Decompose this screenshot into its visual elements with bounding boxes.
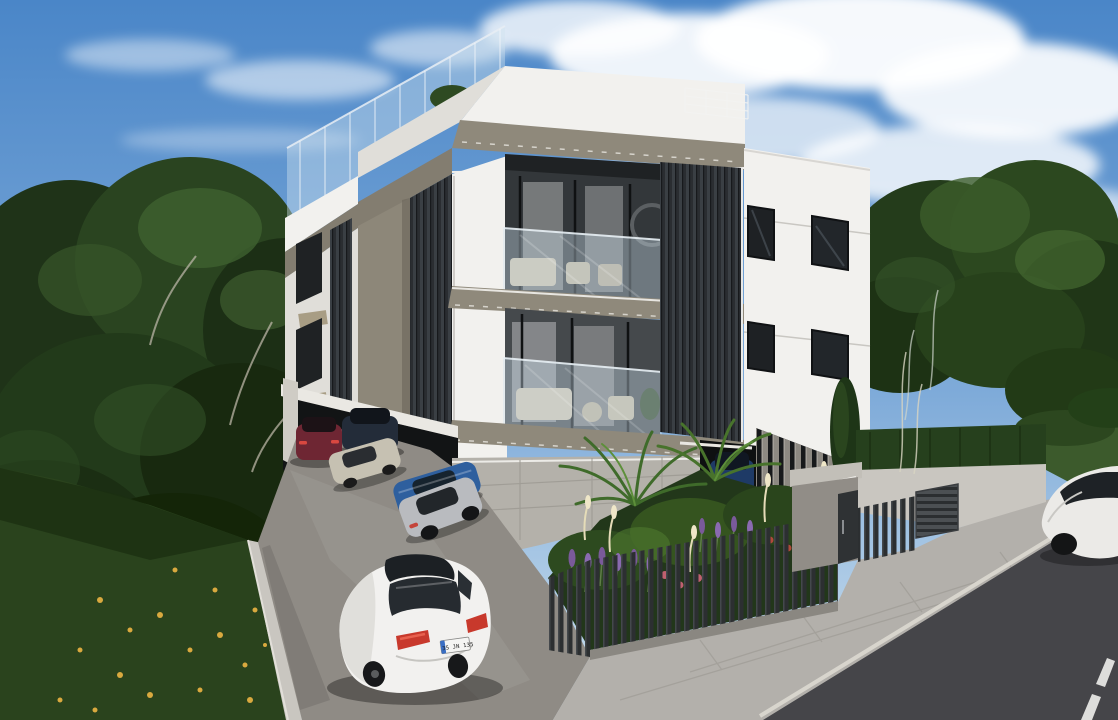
wheel — [1051, 533, 1077, 555]
balcony-upper — [503, 154, 672, 300]
louver-panel — [916, 484, 958, 538]
window — [812, 216, 848, 270]
cypress-highlight — [833, 382, 849, 458]
left-wing-window-upper — [296, 232, 322, 304]
render-canvas: 35 JN 135 — [0, 0, 1118, 720]
window — [812, 330, 848, 380]
left-wing-window-lower — [296, 318, 322, 390]
taillight — [299, 441, 307, 445]
hub — [371, 670, 379, 678]
entrance-door — [838, 490, 858, 564]
architectural-render-scene: 35 JN 135 — [0, 0, 1118, 720]
slat-column-right — [660, 162, 742, 442]
balcony-lower — [503, 308, 662, 438]
hedge — [856, 424, 1046, 472]
taillight — [331, 440, 339, 444]
window — [748, 322, 774, 372]
